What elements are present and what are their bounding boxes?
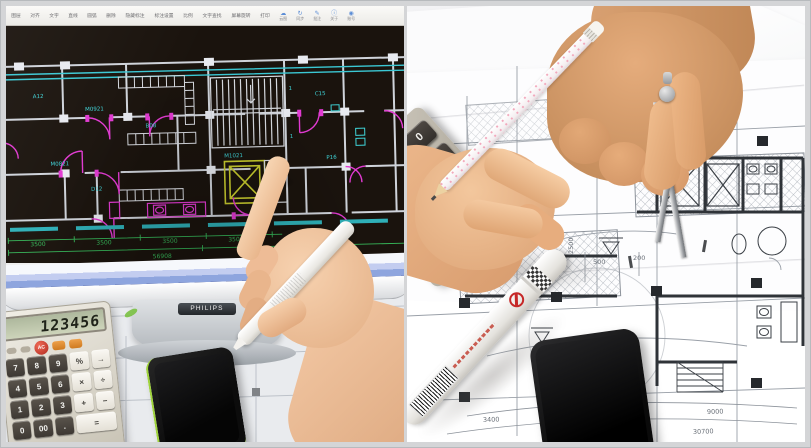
calc-key: 4 [8,379,28,399]
cad-menu-bar: 图层 对齐 文字 直线 圆弧 删除 隐藏标注 标注设置 比例 文字查找 屏幕旋转… [6,6,404,26]
dimension-label: 30700 [693,427,714,436]
cad-menu-label: 云图 [279,17,287,21]
cad-menu-item: 图层 [11,12,21,19]
room-label: P16 [326,155,337,161]
smartphone [144,346,247,442]
calc-key: 3 [52,395,72,415]
calc-key: 5 [29,376,49,396]
room-label: M0821 [50,161,69,167]
room-label: M0921 [85,106,104,112]
cad-menu-user-button: ◉ 账号 [347,11,355,21]
calculator-keypad: 7 8 9 % → 4 5 6 × ÷ 1 2 3 + − 0 00 . = [6,349,117,440]
calc-key: × [71,372,91,392]
calc-key: + [74,393,94,413]
room-label: M1021 [224,153,243,159]
left-photo-cad-workstation: 图层 对齐 文字 直线 圆弧 删除 隐藏标注 标注设置 比例 文字查找 屏幕旋转… [6,6,404,442]
calculator: 123456 AC 7 8 9 % → 4 5 6 × ÷ 1 [6,300,126,442]
calc-key: 9 [48,353,68,373]
calc-key: 1 [10,399,30,419]
cad-menu-item: 文字 [49,12,59,19]
calc-key: ÷ [93,370,113,390]
calculator-memory-key [20,345,31,352]
cad-menu-label: 关于 [330,17,338,21]
dimension-label: 9000 [707,407,724,416]
calc-key: 8 [27,355,47,375]
cad-menu-item: 直线 [68,12,78,19]
room-label: C15 [315,91,326,97]
cad-menu-item: 圆弧 [87,12,97,19]
room-label: D12 [91,187,102,193]
cad-menu-item: 比例 [183,12,193,19]
dimension-label: 3400 [483,415,500,424]
stair-mark: 1 [290,134,294,140]
calculator-ac-key: AC [34,340,49,355]
cad-menu-label: 账号 [347,17,355,21]
calc-key: = [76,411,117,433]
calculator-memory-key [6,347,17,354]
smartphone [528,327,655,442]
calculator-off-key [69,339,83,349]
cad-menu-item: 屏幕旋转 [232,12,251,19]
dimension-label: 3500 [96,239,112,246]
cad-menu-item: 对齐 [30,12,40,19]
calculator-display-value: 123456 [40,313,100,334]
cad-menu-info-button: ⓘ 关于 [330,11,338,21]
cad-menu-edit-button: ✎ 批注 [313,11,321,21]
cad-menu-item: 删除 [106,12,116,19]
room-label: B08 [145,123,156,129]
cad-menu-sync-button: ↻ 同步 [296,11,304,21]
stair-lines [677,362,723,392]
philips-logo: PHILIPS [178,303,236,315]
cad-menu-item: 文字查找 [203,12,222,19]
calc-key: % [69,351,89,371]
cad-menu-cloud-button: ☁ 云图 [279,11,287,21]
dimension-label: 3500 [162,238,178,245]
calc-key: → [91,349,111,369]
calculator-ce-key [52,340,66,350]
stairwell [210,76,284,148]
cad-menu-label: 同步 [296,17,304,21]
calc-key: 00 [33,418,53,438]
cad-menu-item: 标注设置 [155,12,174,19]
calc-key: 0 [12,420,32,440]
compass-knob [663,72,672,84]
cad-menu-item: 隐藏标注 [126,12,145,19]
calc-key: 2 [31,397,51,417]
photo-collage-frame: 图层 对齐 文字 直线 圆弧 删除 隐藏标注 标注设置 比例 文字查找 屏幕旋转… [0,0,811,448]
calc-key: 6 [50,374,70,394]
calc-key: 7 [6,358,26,378]
calc-key: . [55,416,75,436]
calc-key: − [95,390,115,410]
stair-mark: 1 [289,86,293,92]
cad-menu-item: 打印 [260,12,270,19]
marker-red-logo-icon [506,289,527,310]
cad-menu-label: 批注 [313,17,321,21]
room-label: A12 [33,94,44,100]
compass-hinge [659,86,675,102]
right-photo-blueprint-drafting: 3400 9000 30700 2500 500 200 0 0 1 4 [407,6,805,442]
dimension-label: 3500 [30,241,46,248]
